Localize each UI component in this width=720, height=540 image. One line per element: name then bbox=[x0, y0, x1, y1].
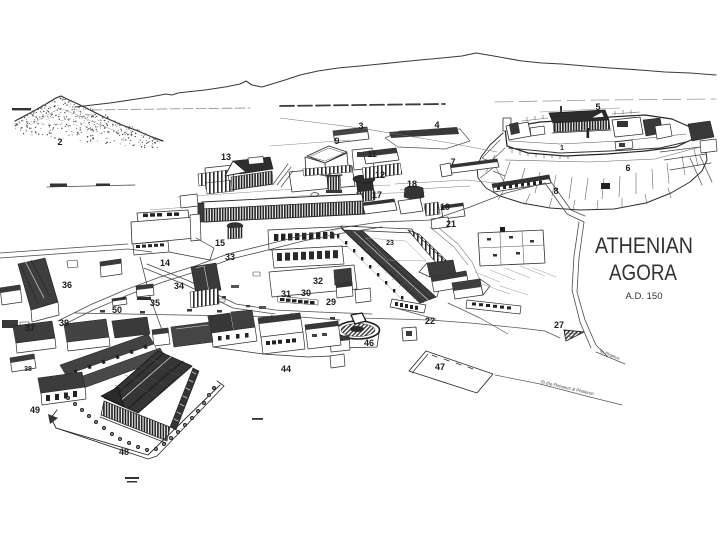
svg-text:46: 46 bbox=[364, 338, 374, 348]
svg-text:44: 44 bbox=[281, 364, 291, 374]
svg-text:19: 19 bbox=[440, 202, 450, 212]
svg-text:13: 13 bbox=[221, 152, 231, 162]
svg-text:38: 38 bbox=[24, 366, 32, 373]
svg-text:23: 23 bbox=[386, 240, 394, 247]
svg-text:27: 27 bbox=[554, 320, 564, 330]
svg-text:7: 7 bbox=[450, 157, 455, 167]
svg-text:37: 37 bbox=[25, 323, 35, 333]
svg-text:31: 31 bbox=[281, 289, 291, 299]
svg-text:8: 8 bbox=[553, 186, 558, 196]
svg-text:6: 6 bbox=[625, 163, 630, 173]
svg-text:2: 2 bbox=[57, 137, 62, 147]
svg-text:9: 9 bbox=[334, 136, 339, 146]
svg-text:34: 34 bbox=[174, 281, 184, 291]
svg-text:50: 50 bbox=[112, 305, 122, 315]
svg-text:4: 4 bbox=[434, 120, 439, 130]
svg-text:3: 3 bbox=[358, 121, 363, 131]
svg-text:39: 39 bbox=[59, 318, 69, 328]
svg-text:36: 36 bbox=[62, 280, 72, 290]
svg-text:ATHENIAN: ATHENIAN bbox=[595, 233, 693, 258]
svg-text:33: 33 bbox=[225, 252, 235, 262]
svg-text:A.D. 150: A.D. 150 bbox=[626, 291, 663, 302]
svg-text:30: 30 bbox=[301, 288, 311, 298]
svg-text:11: 11 bbox=[367, 149, 377, 159]
svg-text:32: 32 bbox=[313, 276, 323, 286]
svg-text:17: 17 bbox=[372, 190, 382, 200]
svg-text:18: 18 bbox=[407, 179, 417, 189]
svg-text:1: 1 bbox=[560, 145, 564, 152]
svg-text:48: 48 bbox=[119, 447, 129, 457]
svg-text:47: 47 bbox=[435, 362, 445, 372]
svg-text:15: 15 bbox=[215, 238, 225, 248]
svg-text:29: 29 bbox=[326, 297, 336, 307]
svg-text:35: 35 bbox=[150, 298, 160, 308]
svg-text:22: 22 bbox=[425, 316, 435, 326]
svg-text:5: 5 bbox=[595, 102, 600, 112]
svg-text:12: 12 bbox=[375, 170, 385, 180]
svg-text:49: 49 bbox=[30, 405, 40, 415]
svg-text:21: 21 bbox=[446, 219, 456, 229]
svg-text:14: 14 bbox=[160, 258, 170, 268]
svg-text:AGORA: AGORA bbox=[609, 260, 677, 285]
